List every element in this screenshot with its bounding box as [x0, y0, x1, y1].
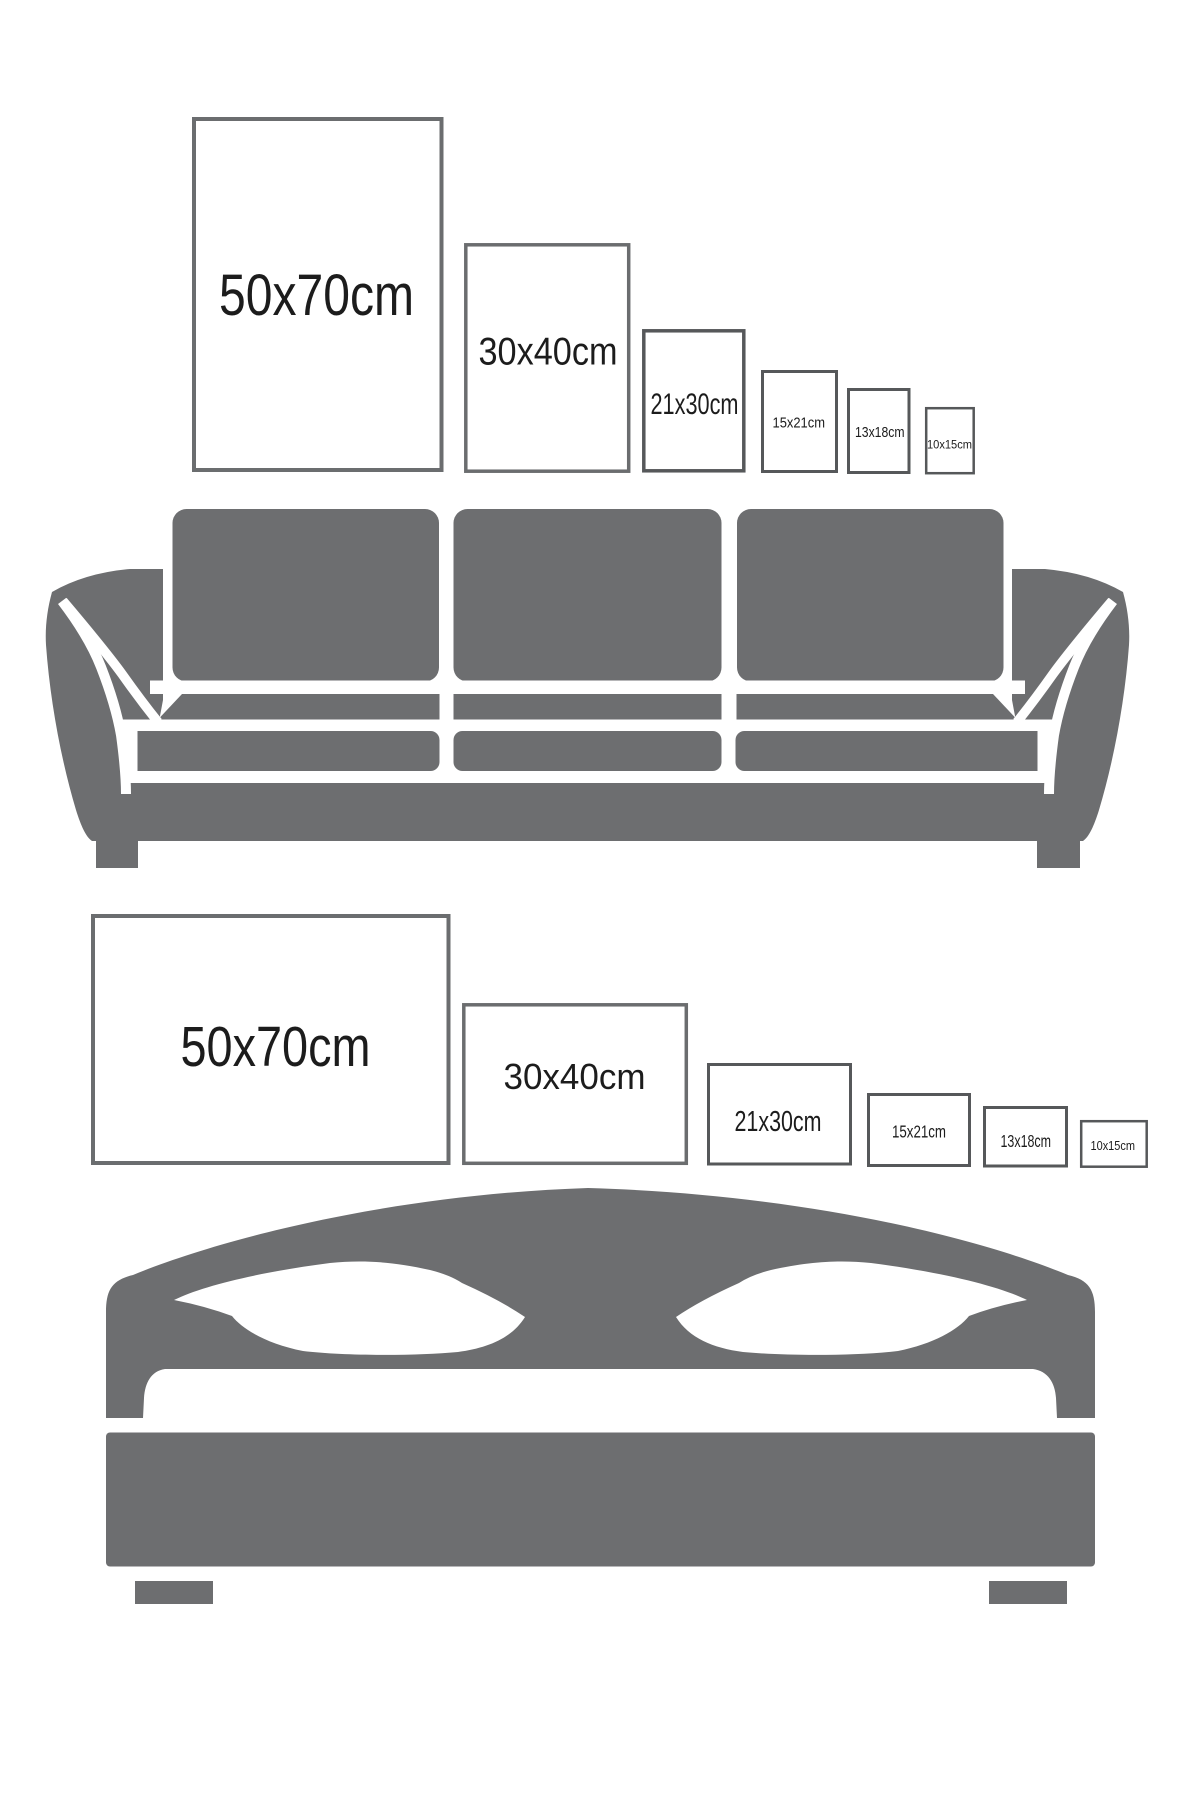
svg-text:50x70cm: 50x70cm [219, 263, 414, 328]
svg-text:15x21cm: 15x21cm [773, 415, 826, 432]
svg-text:13x18cm: 13x18cm [855, 424, 905, 441]
svg-text:30x40cm: 30x40cm [504, 1056, 646, 1097]
svg-text:50x70cm: 50x70cm [181, 1015, 371, 1078]
svg-text:10x15cm: 10x15cm [1091, 1138, 1136, 1153]
svg-text:13x18cm: 13x18cm [1001, 1131, 1052, 1151]
svg-text:10x15cm: 10x15cm [927, 438, 972, 452]
svg-text:21x30cm: 21x30cm [651, 388, 739, 421]
svg-text:21x30cm: 21x30cm [735, 1106, 822, 1138]
svg-text:15x21cm: 15x21cm [892, 1122, 946, 1142]
svg-text:30x40cm: 30x40cm [479, 331, 618, 374]
